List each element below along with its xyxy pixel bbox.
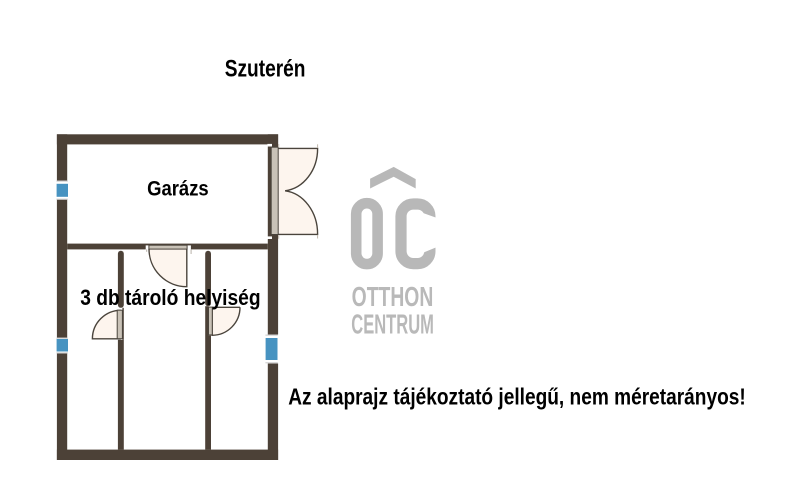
svg-text:Szuterén: Szuterén [225, 56, 306, 83]
svg-text:3 db tároló helyiség: 3 db tároló helyiség [80, 285, 260, 310]
svg-text:OTTHON: OTTHON [352, 281, 434, 312]
svg-text:Az alaprajz tájékoztató jelleg: Az alaprajz tájékoztató jellegű, nem mér… [288, 383, 746, 409]
svg-text:Garázs: Garázs [147, 178, 209, 201]
svg-text:CENTRUM: CENTRUM [351, 308, 434, 339]
